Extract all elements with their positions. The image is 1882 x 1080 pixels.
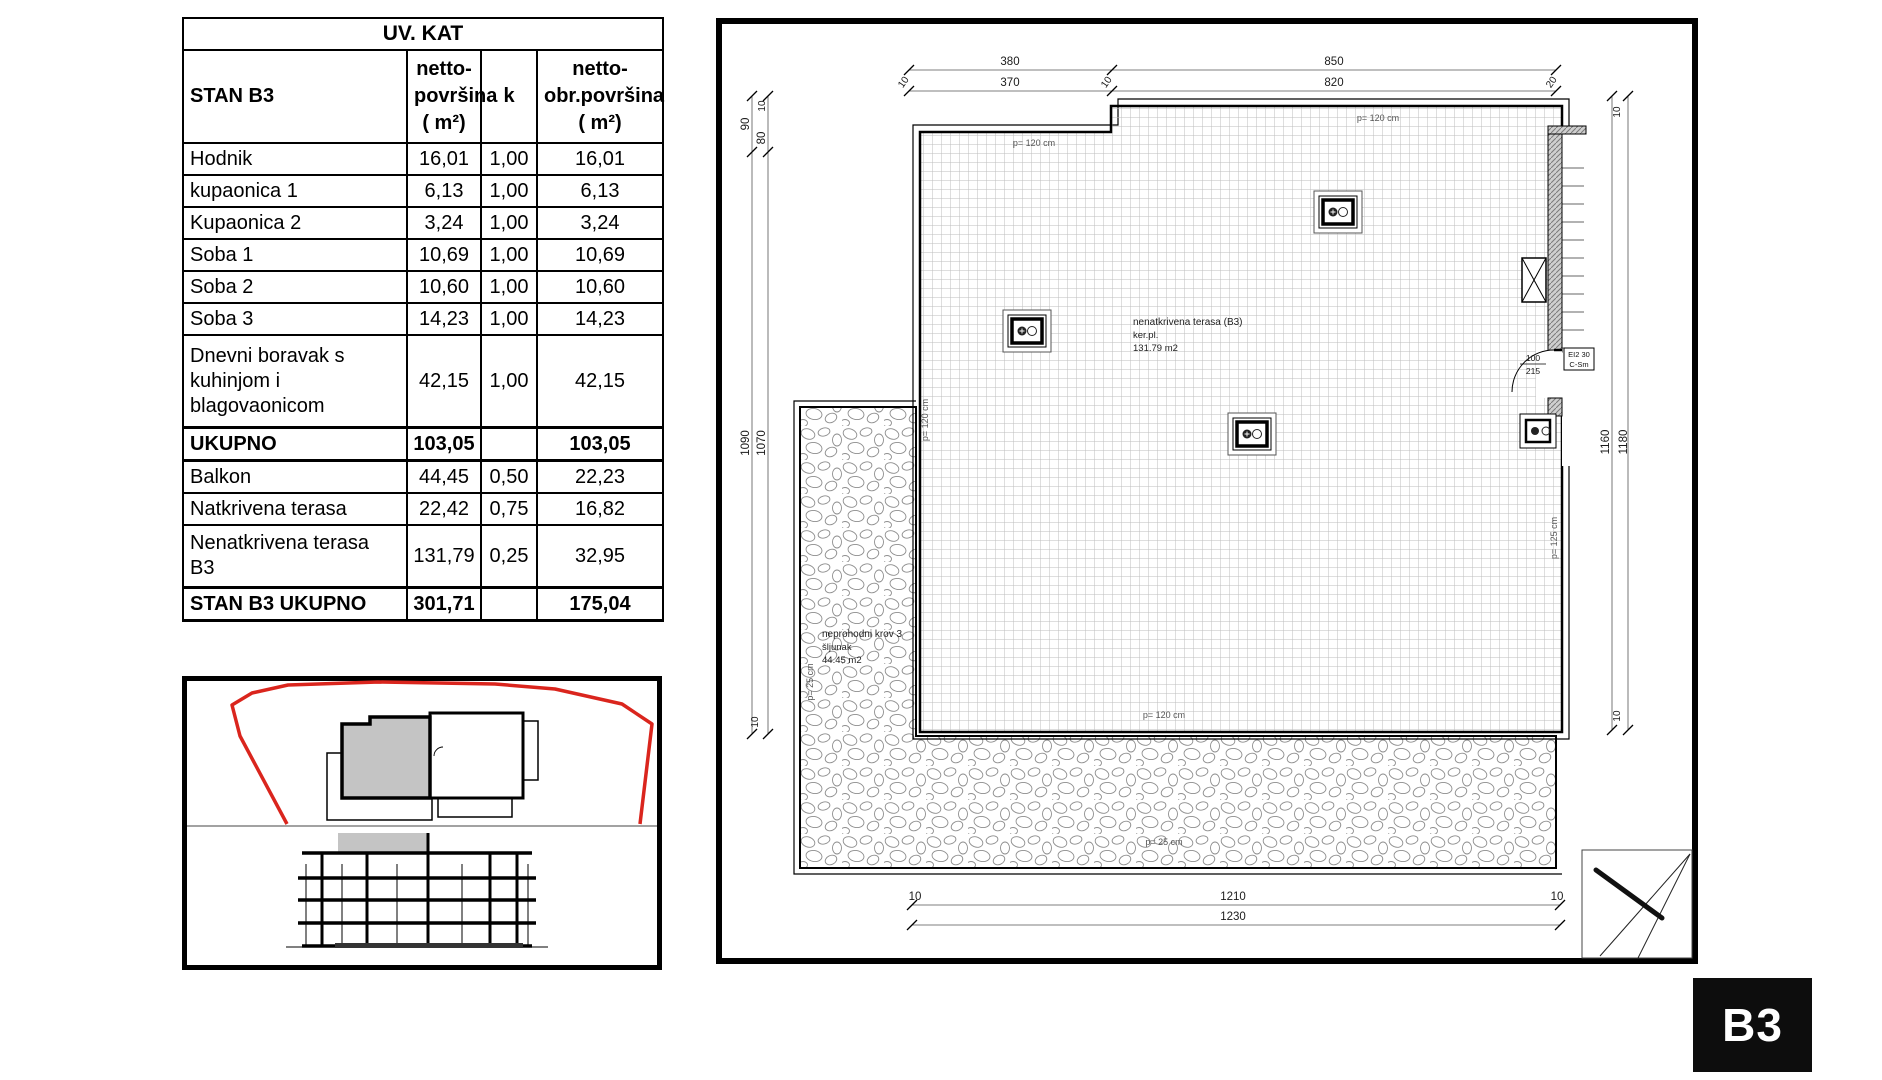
cell-name: Balkon xyxy=(183,461,407,494)
cell-k: 1,00 xyxy=(481,303,537,335)
cell-netto: 16,01 xyxy=(407,143,481,175)
terrace-label-line2: ker.pl. xyxy=(1133,330,1158,341)
cell-name: kupaonica 1 xyxy=(183,175,407,207)
dim-820: 820 xyxy=(1324,77,1343,89)
table-row: Dnevni boravak s kuhinjom i blagovaonico… xyxy=(183,335,663,428)
cell-netto: 44,45 xyxy=(407,461,481,494)
dim-90: 90 xyxy=(740,118,752,131)
cell-name: Soba 3 xyxy=(183,303,407,335)
elevation-unit-highlight xyxy=(338,833,427,853)
dim-10: 10 xyxy=(1612,710,1623,722)
cell-name: UKUPNO xyxy=(183,428,407,461)
dim-1230: 1230 xyxy=(1220,911,1246,923)
table-header-row: STAN B3 netto- površina ( m²) k netto- o… xyxy=(183,50,663,143)
table-row-total: UKUPNO 103,05 103,05 xyxy=(183,428,663,461)
table-row: Soba 2 10,60 1,00 10,60 xyxy=(183,271,663,303)
cell-obr: 16,01 xyxy=(537,143,663,175)
table-row: Nenatkrivena terasa B3 131,79 0,25 32,95 xyxy=(183,525,663,588)
cell-k xyxy=(481,588,537,621)
unit-badge: B3 xyxy=(1693,978,1812,1072)
wall-hatched xyxy=(1548,134,1562,352)
dim-10: 10 xyxy=(1612,106,1623,118)
cell-obr: 16,82 xyxy=(537,493,663,525)
cell-obr: 10,69 xyxy=(537,239,663,271)
table-row: Natkrivena terasa 22,42 0,75 16,82 xyxy=(183,493,663,525)
cell-k: 1,00 xyxy=(481,335,537,428)
architectural-sheet: UV. KAT STAN B3 netto- površina ( m²) k … xyxy=(0,0,1882,1080)
dim-80: 80 xyxy=(756,132,768,145)
unit-badge-label: B3 xyxy=(1722,998,1783,1052)
cell-k: 0,50 xyxy=(481,461,537,494)
cell-obr: 14,23 xyxy=(537,303,663,335)
dim-10: 10 xyxy=(750,716,761,728)
building-neighbour-unit xyxy=(430,713,523,798)
column-header-netto: netto- površina ( m²) xyxy=(407,50,481,143)
cell-k: 1,00 xyxy=(481,239,537,271)
dim-380: 380 xyxy=(1000,56,1019,68)
skylight-icon xyxy=(1228,413,1276,455)
cell-obr: 175,04 xyxy=(537,588,663,621)
dim-1160: 1160 xyxy=(1600,430,1612,455)
cell-netto: 22,42 xyxy=(407,493,481,525)
footprint-side xyxy=(523,721,538,780)
wall-hatched-cap xyxy=(1548,126,1586,134)
table-row: Hodnik 16,01 1,00 16,01 xyxy=(183,143,663,175)
cell-netto: 10,69 xyxy=(407,239,481,271)
terrace-label-line3: 131.79 m2 xyxy=(1133,343,1178,354)
cell-name: Hodnik xyxy=(183,143,407,175)
slope-label: p= 120 cm xyxy=(920,399,930,441)
terrace-label-line1: nenatkrivena terasa (B3) xyxy=(1133,317,1243,328)
table-row: Balkon 44,45 0,50 22,23 xyxy=(183,461,663,494)
cell-name: Kupaonica 2 xyxy=(183,207,407,239)
cell-k: 1,00 xyxy=(481,175,537,207)
cell-netto: 3,24 xyxy=(407,207,481,239)
cell-k: 0,75 xyxy=(481,493,537,525)
table-row: kupaonica 1 6,13 1,00 6,13 xyxy=(183,175,663,207)
site-plan-key xyxy=(182,676,662,970)
cell-netto: 301,71 xyxy=(407,588,481,621)
wall-hatched-stub xyxy=(1548,398,1562,416)
cell-k: 1,00 xyxy=(481,207,537,239)
dim-10: 10 xyxy=(1551,891,1564,903)
cell-k: 1,00 xyxy=(481,271,537,303)
cell-obr: 6,13 xyxy=(537,175,663,207)
table-title-row: UV. KAT xyxy=(183,18,663,50)
cell-obr: 3,24 xyxy=(537,207,663,239)
elevation-base-bar xyxy=(335,943,523,948)
column-header-obr: netto- obr.površina ( m²) xyxy=(537,50,663,143)
cell-k xyxy=(481,428,537,461)
cell-obr: 22,23 xyxy=(537,461,663,494)
cell-netto: 42,15 xyxy=(407,335,481,428)
fire-door-class: EI2 30 xyxy=(1568,350,1590,359)
table-title: UV. KAT xyxy=(183,18,663,50)
cell-name: STAN B3 UKUPNO xyxy=(183,588,407,621)
cell-obr: 42,15 xyxy=(537,335,663,428)
cell-obr: 10,60 xyxy=(537,271,663,303)
slope-label: p= 120 cm xyxy=(1143,710,1185,720)
cell-netto: 103,05 xyxy=(407,428,481,461)
cell-obr: 32,95 xyxy=(537,525,663,588)
building-unit-b3-highlight xyxy=(342,717,430,798)
stairwell-clear xyxy=(1562,126,1588,466)
cell-name: Soba 1 xyxy=(183,239,407,271)
cell-name: Natkrivena terasa xyxy=(183,493,407,525)
dim-1180: 1180 xyxy=(1618,430,1630,455)
roof-label-line2: šljunak xyxy=(822,642,852,653)
cell-netto: 6,13 xyxy=(407,175,481,207)
roof-label-line1: neprohodni krov 3 xyxy=(822,629,902,640)
door-height: 215 xyxy=(1526,366,1540,376)
fire-door-closer: C-Sm xyxy=(1569,360,1588,369)
cell-obr: 103,05 xyxy=(537,428,663,461)
skylight-icon xyxy=(1314,191,1362,233)
cell-k: 1,00 xyxy=(481,143,537,175)
floor-plan: 100 215 EI2 30 C-Sm 380 850 37 xyxy=(716,18,1698,964)
dim-850: 850 xyxy=(1324,56,1343,68)
slope-label: p= 25 cm xyxy=(1145,837,1182,847)
dim-10: 10 xyxy=(757,100,768,112)
slope-label: p= 25 cm xyxy=(805,663,815,700)
dim-1090: 1090 xyxy=(740,430,752,456)
dim-10: 10 xyxy=(909,891,922,903)
column-header-name: STAN B3 xyxy=(183,50,407,143)
cell-name: Dnevni boravak s kuhinjom i blagovaonico… xyxy=(183,335,407,428)
dim-1210: 1210 xyxy=(1220,891,1246,903)
table-row: Soba 3 14,23 1,00 14,23 xyxy=(183,303,663,335)
cell-name: Nenatkrivena terasa B3 xyxy=(183,525,407,588)
vent-fixture-icon xyxy=(1520,414,1556,448)
cell-k: 0,25 xyxy=(481,525,537,588)
cell-name: Soba 2 xyxy=(183,271,407,303)
cell-netto: 10,60 xyxy=(407,271,481,303)
skylight-icon xyxy=(1003,310,1051,352)
table-row: Soba 1 10,69 1,00 10,69 xyxy=(183,239,663,271)
slope-label: p= 120 cm xyxy=(1357,113,1399,123)
slope-label: p= 120 cm xyxy=(1013,138,1055,148)
area-table: UV. KAT STAN B3 netto- površina ( m²) k … xyxy=(182,17,664,622)
dim-1070: 1070 xyxy=(756,430,768,456)
dim-370: 370 xyxy=(1000,77,1019,89)
cell-netto: 14,23 xyxy=(407,303,481,335)
roof-label-line3: 44.45 m2 xyxy=(822,655,862,666)
door-width: 100 xyxy=(1526,353,1540,363)
north-arrow-icon xyxy=(1582,850,1692,958)
table-row: Kupaonica 2 3,24 1,00 3,24 xyxy=(183,207,663,239)
slope-label: p= 125 cm xyxy=(1549,517,1559,559)
cell-netto: 131,79 xyxy=(407,525,481,588)
table-row-grand-total: STAN B3 UKUPNO 301,71 175,04 xyxy=(183,588,663,621)
footprint-lower-right xyxy=(438,798,512,817)
